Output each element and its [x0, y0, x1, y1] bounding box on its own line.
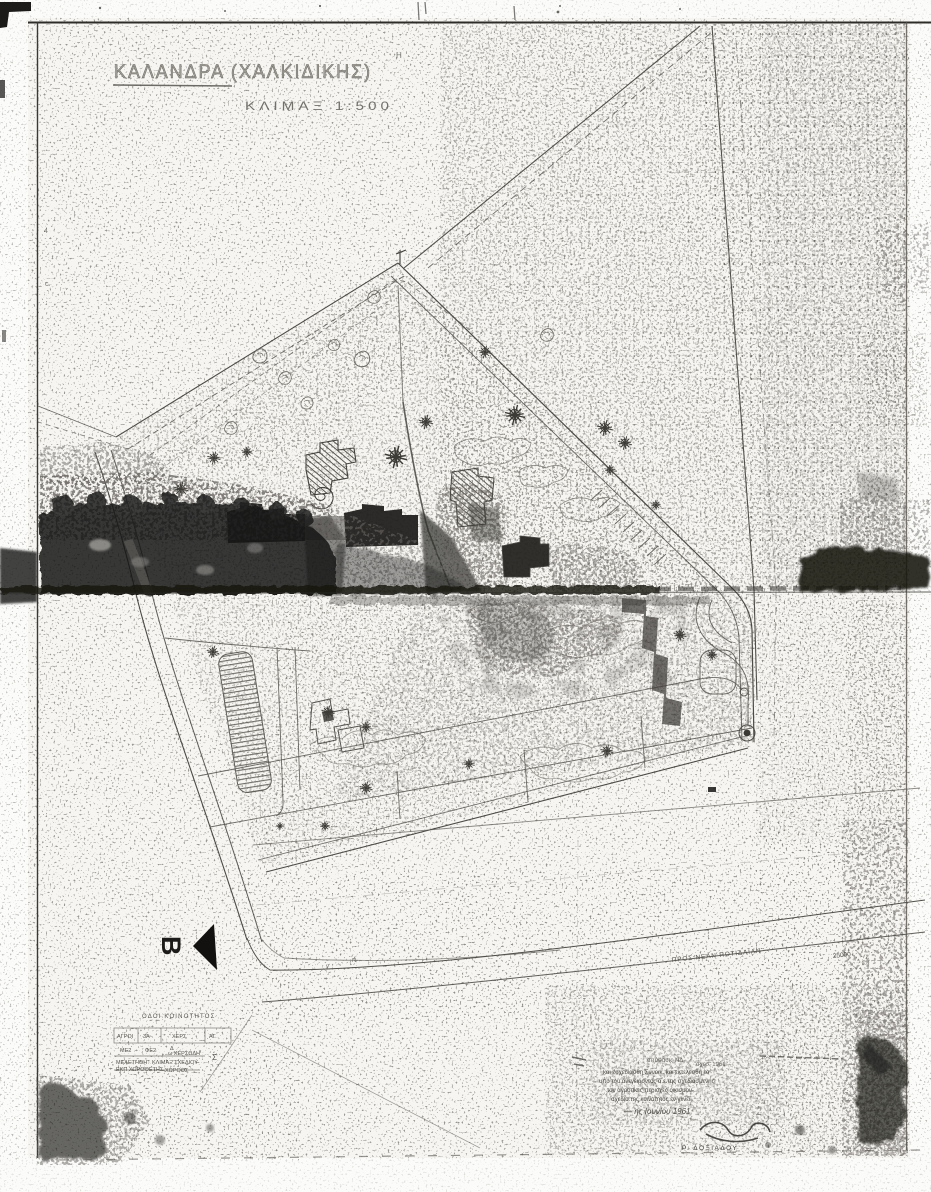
svg-text:ΜΕ2: ΜΕ2 — [120, 1048, 131, 1054]
svg-text:υπο του ανεγειροντος α.ε.της σ: υπο του ανεγειροντος α.ε.της σχεδιασμενη… — [599, 1079, 715, 1085]
svg-text:ΟΔΟΙ ΚΟΙΝΟΤΗΤΟΣ: ΟΔΟΙ ΚΟΙΝΟΤΗΤΟΣ — [142, 1014, 216, 1020]
svg-text:4: 4 — [44, 228, 48, 235]
svg-text:ΑΓ.: ΑΓ. — [209, 1034, 217, 1040]
svg-text:y: y — [326, 964, 329, 970]
svg-text:ΚΛΙΜΑΞ 1:500: ΚΛΙΜΑΞ 1:500 — [245, 101, 393, 113]
svg-text:N: N — [352, 958, 356, 964]
svg-text:ΚΛΙΜΑΞ ΣΧΕΔΙΟΥ: ΚΛΙΜΑΞ ΣΧΕΔΙΟΥ — [152, 1060, 198, 1066]
svg-text:ΧΕΡΣ: ΧΕΡΣ — [172, 1034, 187, 1040]
svg-text:ΑΓΡΟΙ: ΑΓΡΟΙ — [117, 1034, 134, 1040]
svg-text:σχεδιο της κοινοτητος εν γενει: σχεδιο της κοινοτητος εν γενει — [611, 1097, 691, 1103]
svg-text:τον αγροτικες περιοχες οικισμο: τον αγροτικες περιοχες οικισμου — [607, 1088, 692, 1094]
svg-text:ω ΧΕΡΣΩΔΗ: ω ΧΕΡΣΩΔΗ — [168, 1051, 200, 1057]
svg-text:3Α: 3Α — [143, 1034, 150, 1040]
svg-text:απόφασις ΝΔ: απόφασις ΝΔ — [647, 1057, 683, 1064]
svg-text:και εσχεδιασθη Συνοικ. και εκτ: και εσχεδιασθη Συνοικ. και εκτελεσθη το — [603, 1070, 710, 1076]
svg-text:ΧΩΡΟΘΣ: ΧΩΡΟΘΣ — [165, 1068, 189, 1074]
svg-text:Σ: Σ — [212, 1053, 217, 1062]
svg-text:— ης Ιουνίου 1961: — ης Ιουνίου 1961 — [623, 1107, 691, 1116]
svg-text:B: B — [156, 936, 186, 956]
svg-text:Ρ. ΔΟΞΙΑΔΟΥ: Ρ. ΔΟΞΙΑΔΟΥ — [682, 1145, 738, 1152]
svg-text:ΜΕΛΕΤΗΘΗ: ΜΕΛΕΤΗΘΗ — [116, 1060, 147, 1066]
svg-text:ΚΑΛΑΝΔΡΑ (ΧΑΛΚΙΔΙΚΗΣ): ΚΑΛΑΝΔΡΑ (ΧΑΛΚΙΔΙΚΗΣ) — [114, 62, 372, 83]
svg-text:ΦΕ2: ΦΕ2 — [145, 1048, 156, 1054]
svg-text:σχεδ. 1961: σχεδ. 1961 — [696, 1062, 726, 1068]
svg-text:c.: c. — [45, 281, 51, 288]
svg-text:ΕΚΠ ΧΩΡΟΘΕΤΗΣ: ΕΚΠ ΧΩΡΟΘΕΤΗΣ — [116, 1067, 164, 1073]
svg-text:H: H — [396, 51, 402, 60]
